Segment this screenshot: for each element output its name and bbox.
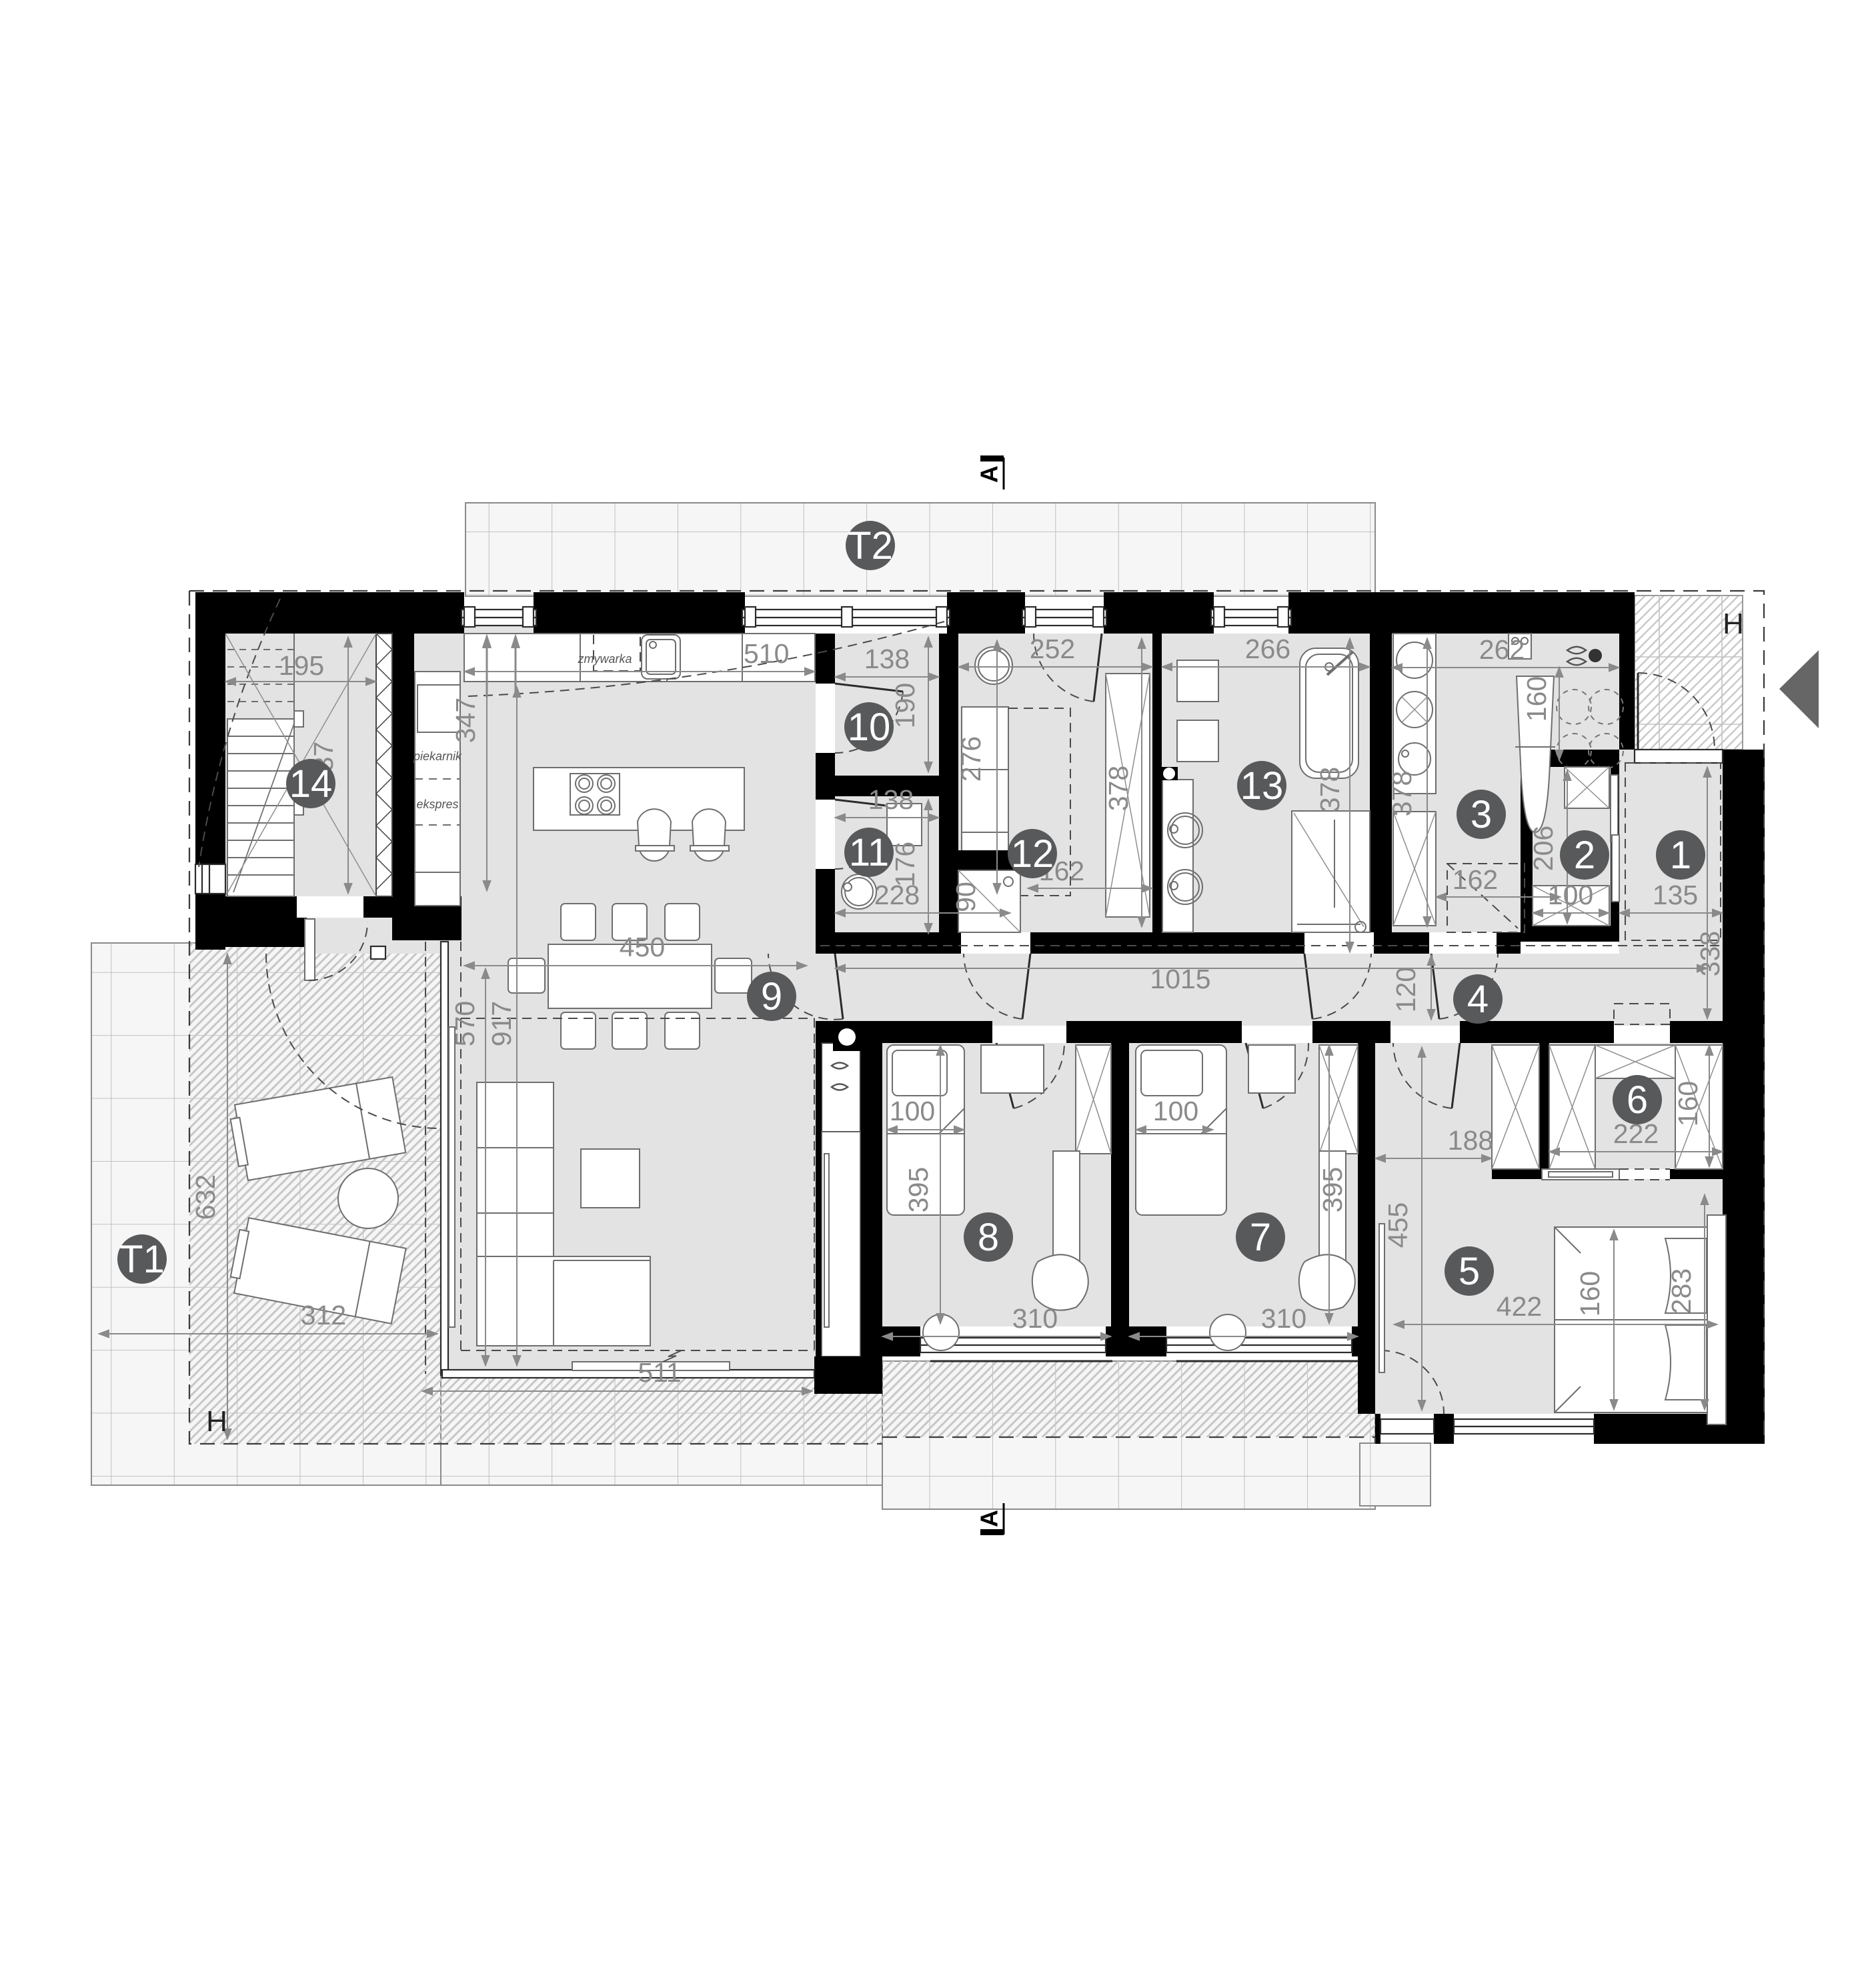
svg-text:276: 276 (956, 736, 986, 782)
svg-text:455: 455 (1382, 1202, 1413, 1248)
svg-text:378: 378 (1103, 766, 1134, 811)
svg-text:378: 378 (1314, 767, 1345, 812)
svg-text:160: 160 (1673, 1081, 1703, 1126)
svg-text:228: 228 (874, 880, 920, 910)
svg-text:T1: T1 (119, 1238, 165, 1281)
svg-text:100: 100 (1548, 880, 1593, 910)
svg-text:310: 310 (1261, 1303, 1306, 1334)
svg-text:1: 1 (1670, 834, 1691, 877)
svg-text:422: 422 (1497, 1291, 1542, 1322)
svg-text:338: 338 (1695, 931, 1725, 976)
svg-text:312: 312 (301, 1300, 346, 1330)
svg-text:H: H (206, 1405, 227, 1438)
svg-text:1015: 1015 (1150, 964, 1210, 994)
svg-text:395: 395 (903, 1167, 934, 1212)
svg-text:10: 10 (848, 706, 891, 749)
svg-text:ekspres: ekspres (416, 798, 458, 811)
svg-text:570: 570 (449, 1001, 480, 1046)
svg-text:14: 14 (289, 762, 333, 806)
svg-text:12: 12 (1011, 832, 1054, 876)
svg-text:206: 206 (1528, 826, 1559, 871)
svg-text:310: 310 (1012, 1303, 1058, 1334)
svg-text:6: 6 (1627, 1078, 1648, 1122)
svg-text:H: H (1723, 608, 1744, 640)
svg-text:262: 262 (1479, 634, 1525, 665)
svg-text:283: 283 (1666, 1268, 1697, 1314)
svg-text:511: 511 (638, 1357, 681, 1388)
svg-text:T2: T2 (848, 524, 893, 568)
svg-text:A: A (976, 465, 1003, 483)
svg-text:378: 378 (1386, 771, 1417, 816)
svg-text:3: 3 (1471, 793, 1492, 836)
svg-text:395: 395 (1317, 1167, 1348, 1212)
svg-text:450: 450 (620, 932, 665, 962)
svg-text:917: 917 (486, 1001, 517, 1046)
svg-text:2: 2 (1574, 834, 1595, 877)
svg-text:4: 4 (1467, 978, 1489, 1021)
svg-text:138: 138 (864, 644, 910, 674)
svg-text:100: 100 (1153, 1096, 1198, 1126)
svg-text:160: 160 (1575, 1271, 1605, 1316)
svg-text:632: 632 (190, 1174, 221, 1220)
svg-text:135: 135 (1653, 880, 1698, 910)
svg-text:13: 13 (1240, 764, 1284, 808)
svg-text:510: 510 (744, 638, 789, 669)
svg-text:190: 190 (890, 683, 920, 728)
svg-text:120: 120 (1390, 967, 1421, 1012)
svg-text:7: 7 (1250, 1216, 1271, 1259)
svg-text:195: 195 (279, 650, 324, 681)
svg-text:162: 162 (1453, 864, 1498, 895)
svg-text:5: 5 (1459, 1250, 1480, 1293)
svg-text:A: A (976, 1510, 1003, 1527)
svg-text:9: 9 (761, 975, 782, 1018)
svg-text:piekarnik: piekarnik (413, 750, 462, 763)
svg-text:100: 100 (890, 1096, 935, 1126)
svg-text:zmywarka: zmywarka (577, 652, 632, 666)
svg-text:8: 8 (978, 1216, 999, 1259)
svg-text:347: 347 (450, 698, 481, 743)
svg-text:188: 188 (1448, 1125, 1493, 1156)
svg-text:138: 138 (868, 784, 914, 815)
svg-text:266: 266 (1245, 634, 1290, 664)
svg-text:90: 90 (950, 882, 981, 912)
svg-text:160: 160 (1521, 676, 1552, 722)
svg-text:11: 11 (849, 831, 889, 874)
svg-text:252: 252 (1030, 634, 1075, 664)
